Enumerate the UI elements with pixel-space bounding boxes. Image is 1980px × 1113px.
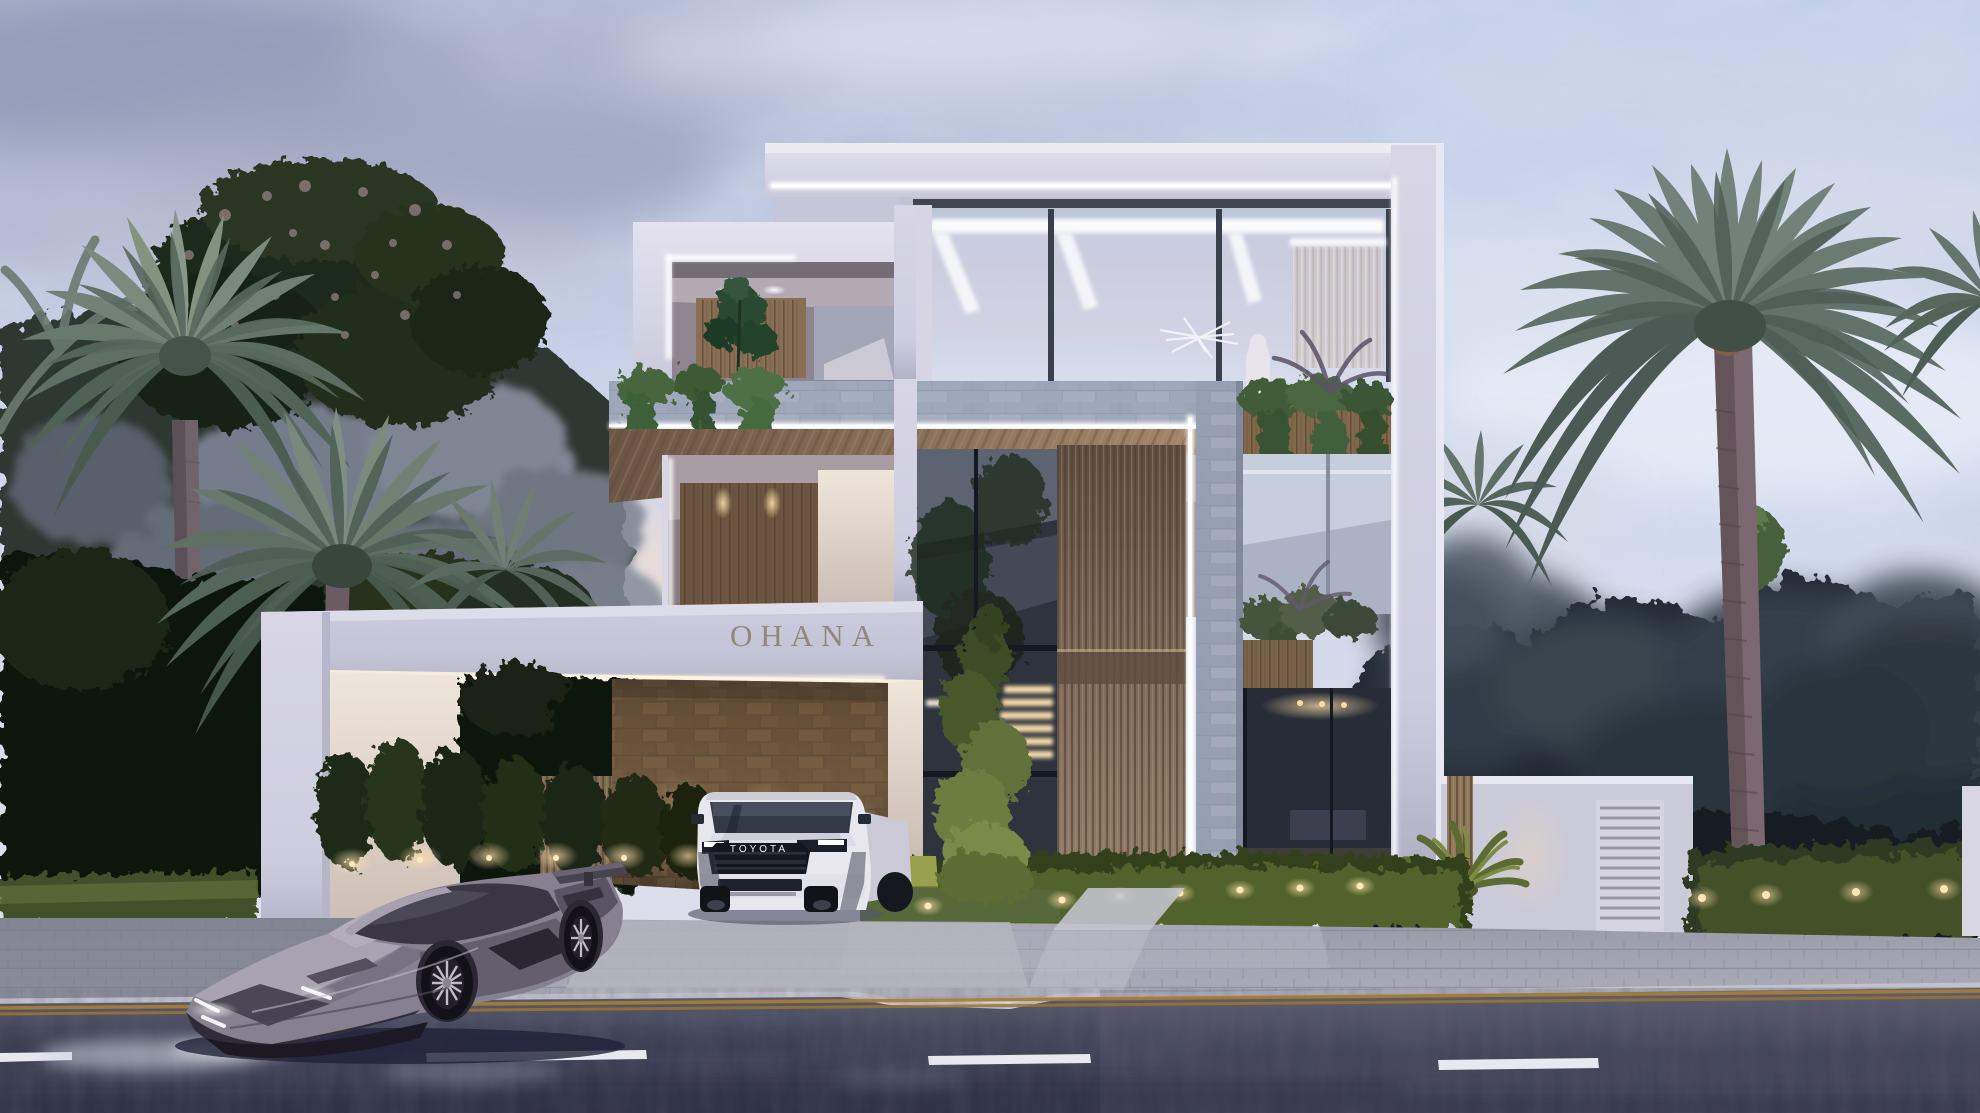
svg-text:OHANA: OHANA [730, 618, 882, 653]
svg-text:TOYOTA: TOYOTA [730, 844, 788, 855]
